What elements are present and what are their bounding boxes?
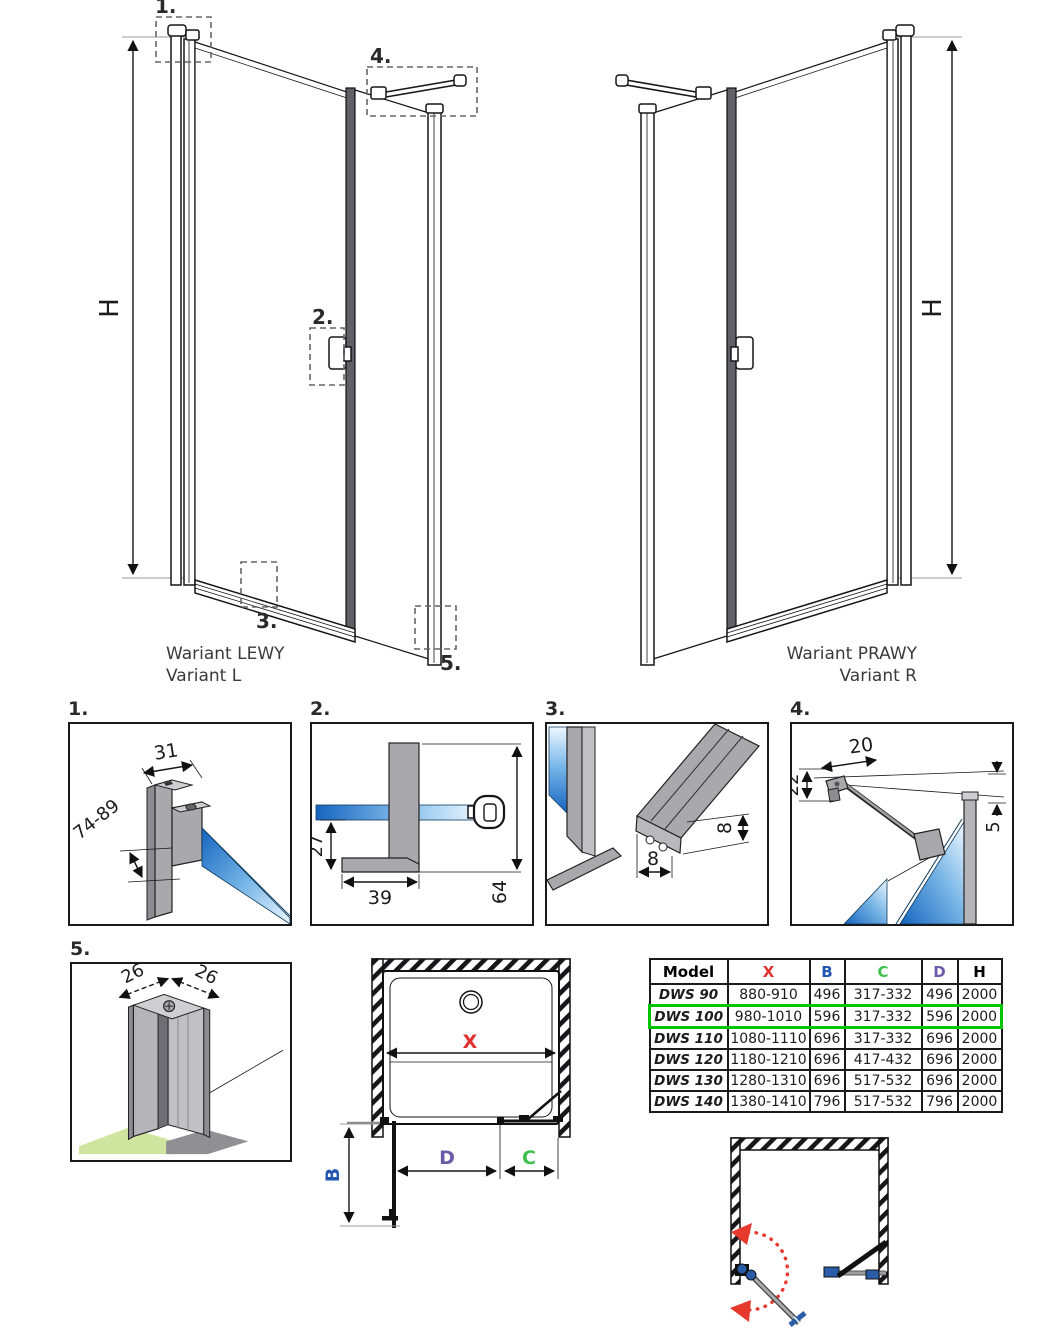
bracket-plate	[389, 743, 419, 868]
door-swing-diagram	[715, 1132, 905, 1332]
support-bar	[845, 784, 924, 843]
support-bar-bracket	[696, 87, 711, 99]
door-glass-panel	[195, 42, 347, 630]
handle-knob-detail-drawing: 27 39 64	[312, 724, 532, 924]
callout-label-3: 3.	[256, 609, 278, 633]
left-variant-drawing: H 1. 2.	[95, 0, 477, 686]
col-header-b: B	[810, 959, 845, 984]
dim-c-label: C	[522, 1147, 536, 1169]
mullion-plan	[497, 1117, 504, 1124]
wall-profile	[901, 33, 911, 585]
detail-figure-4: 4. 20 22 5	[790, 698, 1014, 926]
bracket-foot	[342, 858, 419, 872]
bottom-seal-detail-drawing: 8 8	[547, 724, 767, 924]
model-cell: DWS 110	[650, 1028, 728, 1050]
model-cell: DWS 100	[650, 1006, 728, 1028]
door-glass-panel	[735, 42, 887, 630]
col-header-c: C	[845, 959, 922, 984]
col-header-model: Model	[650, 959, 728, 984]
bar-dimension-label: 20	[848, 733, 875, 758]
variant-drawings: H 1. 2.	[0, 0, 1053, 700]
model-cell: DWS 120	[650, 1049, 728, 1070]
model-spec-table: Model X B C D H DWS 90 880-910496 317-33…	[648, 958, 1003, 1113]
wall-top	[731, 1138, 888, 1150]
model-cell: DWS 90	[650, 984, 728, 1006]
glass-pane	[549, 727, 567, 813]
glass-clamp	[914, 829, 945, 860]
seal-height-dimension-label: 8	[714, 822, 736, 834]
side-profile	[641, 110, 654, 665]
corner-profile-detail-drawing: 26 26	[72, 964, 290, 1160]
table-row: DWS 140 1380-1410796 517-532796 2000	[650, 1091, 1002, 1112]
corner-profile-back	[168, 1001, 204, 1134]
side-profile	[964, 796, 976, 924]
table-row: DWS 90 880-910496 317-332496 2000	[650, 984, 1002, 1006]
sill-edge	[547, 848, 621, 890]
table-row: DWS 120 1180-1210696 417-432696 2000	[650, 1049, 1002, 1070]
wall-top	[372, 959, 570, 971]
seal-width-dimension-label: 8	[647, 848, 659, 870]
height-dimension-label: 64	[489, 880, 511, 904]
callout-label-4: 4.	[370, 44, 392, 68]
width-dimension-label: 31	[152, 739, 179, 765]
plan-view-drawing: X B D C	[320, 950, 580, 1260]
fixed-glass-panel	[355, 90, 429, 659]
height-dimension-label: H	[95, 298, 125, 318]
support-bar-wall-mount	[616, 75, 628, 86]
detail-5-label: 5.	[70, 938, 292, 960]
panel-clamp	[824, 1267, 839, 1277]
table-header-row: Model X B C D H	[650, 959, 1002, 984]
shower-door-spec-sheet: H 1. 2.	[0, 0, 1053, 1333]
wall-left	[372, 959, 383, 1137]
glass-pane	[202, 828, 290, 924]
hinge-profile	[184, 39, 195, 585]
detail-4-label: 4.	[790, 698, 1014, 720]
detail-figure-1: 1. 31 74-89	[68, 698, 292, 926]
door-pivot	[380, 1117, 389, 1125]
height-dimension-label: H	[918, 298, 948, 318]
left-variant-caption-en: Variant L	[166, 666, 242, 686]
right-variant-drawing: H Wariant PRAWY Variant R	[616, 25, 962, 686]
detail-2-label: 2.	[310, 698, 534, 720]
left-variant-caption-pl: Wariant LEWY	[166, 644, 285, 664]
foot-dimension-label: 39	[368, 887, 392, 909]
front-dimension-label: 27	[312, 835, 327, 858]
detail-figure-3: 3. 8 8	[545, 698, 769, 926]
detail-1-label: 1.	[68, 698, 292, 720]
dim-b-label: B	[322, 1168, 344, 1182]
range-dimension-line	[130, 853, 142, 877]
bar-dimension-line	[822, 760, 876, 768]
range-dimension-label: 74-89	[70, 795, 124, 844]
wall-right	[879, 1138, 888, 1284]
detail-figure-5: 5. 26 26	[70, 938, 292, 1162]
top-pivot-cap	[168, 25, 186, 36]
support-bar-bracket	[371, 87, 386, 99]
right-variant-caption-pl: Wariant PRAWY	[787, 644, 918, 664]
clamp-block	[172, 802, 202, 866]
col-header-h: H	[958, 959, 1002, 984]
corner-profile-front	[133, 998, 158, 1136]
width-dimension-line	[144, 765, 192, 773]
wall-profile-detail-drawing: 31 74-89	[70, 724, 290, 924]
right-variant-caption-en: Variant R	[839, 666, 917, 686]
top-pivot-cap	[896, 25, 914, 36]
left-dimension-label: 26	[118, 964, 147, 988]
detail-figure-2: 2. 27 39 64	[310, 698, 534, 926]
left-dimension-label: 22	[792, 774, 803, 797]
dim-x-label: X	[463, 1031, 478, 1053]
wall-left	[731, 1138, 740, 1284]
callout-label-5: 5.	[440, 651, 462, 675]
col-header-d: D	[922, 959, 958, 984]
hinge-profile	[887, 39, 898, 585]
model-cell: DWS 140	[650, 1091, 728, 1112]
table-row: DWS 130 1280-1310696 517-532696 2000	[650, 1070, 1002, 1091]
side-profile	[428, 110, 441, 665]
open-door	[754, 1278, 799, 1323]
support-bar-detail-drawing: 20 22 5	[792, 724, 1012, 924]
col-header-x: X	[728, 959, 810, 984]
fixed-glass-panel	[653, 90, 727, 659]
pivot-hinge	[737, 1264, 747, 1274]
detail-3-label: 3.	[545, 698, 769, 720]
frame-bar	[567, 727, 582, 852]
right-dimension-label: 26	[191, 964, 220, 989]
table-row-highlighted: DWS 100 980-1010596 317-332596 2000	[650, 1006, 1002, 1028]
glass-pane-small	[844, 879, 887, 924]
swing-arrow-down	[730, 1300, 751, 1322]
wall-right	[559, 959, 570, 1137]
table-row: DWS 110 1080-1110696 317-332696 2000	[650, 1028, 1002, 1050]
screw-head	[186, 804, 196, 810]
callout-label-1: 1.	[155, 0, 177, 18]
callout-label-2: 2.	[312, 305, 334, 329]
screw-head	[835, 782, 840, 787]
right-dimension-label: 5	[983, 821, 1004, 832]
model-cell: DWS 130	[650, 1070, 728, 1091]
floor-surface	[79, 1128, 175, 1154]
spec-table-container: Model X B C D H DWS 90 880-910496 317-33…	[648, 958, 1003, 1113]
wall-profile	[171, 33, 181, 585]
support-bar-wall-mount	[454, 75, 466, 86]
dim-d-label: D	[439, 1147, 455, 1169]
